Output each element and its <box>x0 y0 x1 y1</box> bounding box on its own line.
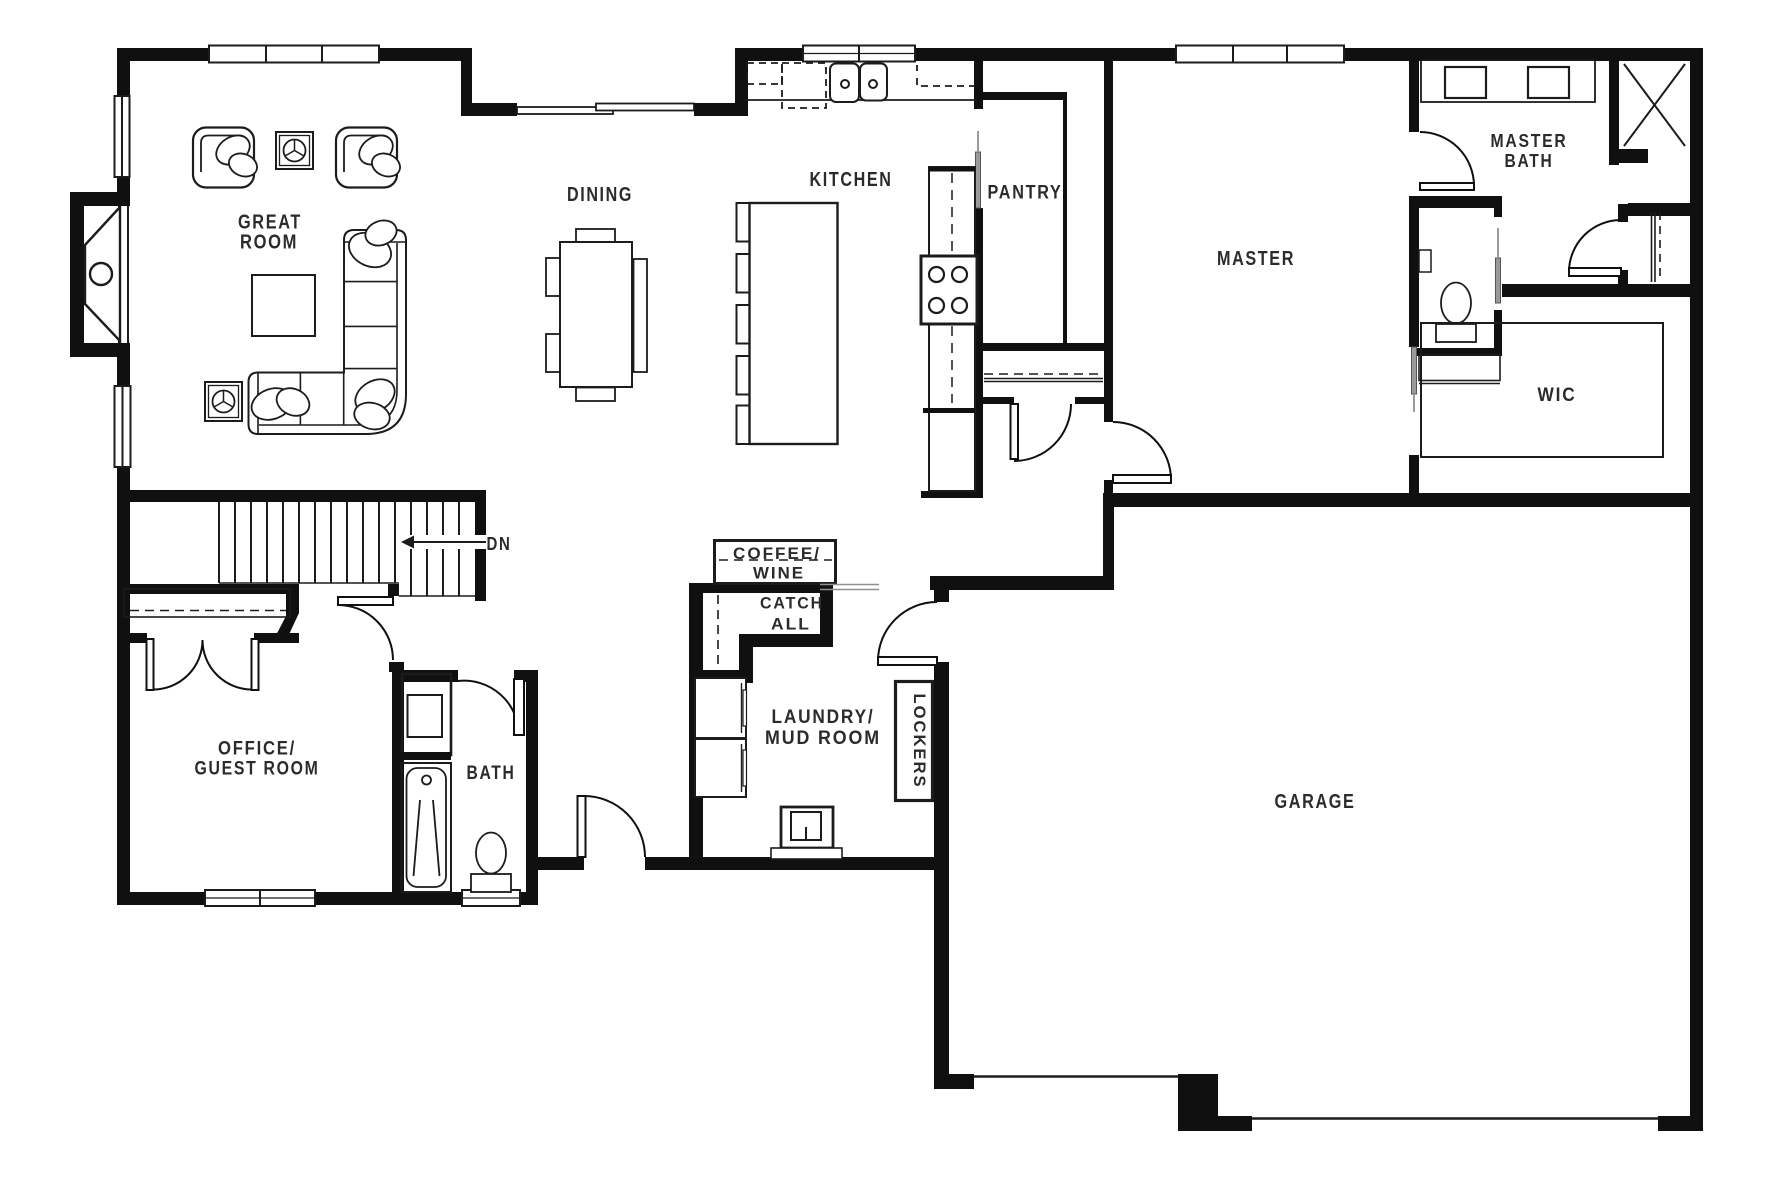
svg-text:PANTRY: PANTRY <box>988 183 1063 204</box>
svg-text:WINE: WINE <box>753 564 805 583</box>
svg-text:GUEST ROOM: GUEST ROOM <box>195 759 320 780</box>
svg-text:BATH: BATH <box>1505 151 1554 171</box>
svg-text:GREAT: GREAT <box>238 212 302 234</box>
svg-text:LAUNDRY/: LAUNDRY/ <box>772 707 875 728</box>
svg-text:LOCKERS: LOCKERS <box>910 694 929 789</box>
svg-text:DINING: DINING <box>567 184 633 206</box>
svg-text:COFFEE/: COFFEE/ <box>733 544 821 563</box>
svg-text:ALL: ALL <box>771 615 811 634</box>
svg-text:DN: DN <box>487 534 512 554</box>
svg-text:GARAGE: GARAGE <box>1275 791 1356 813</box>
svg-text:BATH: BATH <box>467 763 516 784</box>
svg-text:ROOM: ROOM <box>240 232 298 254</box>
svg-text:CATCH: CATCH <box>760 594 824 613</box>
svg-text:KITCHEN: KITCHEN <box>810 169 893 191</box>
svg-text:MASTER: MASTER <box>1491 131 1568 151</box>
svg-text:WIC: WIC <box>1538 385 1577 406</box>
svg-text:MASTER: MASTER <box>1217 248 1295 270</box>
svg-text:MUD ROOM: MUD ROOM <box>765 728 881 749</box>
svg-text:OFFICE/: OFFICE/ <box>218 739 296 760</box>
